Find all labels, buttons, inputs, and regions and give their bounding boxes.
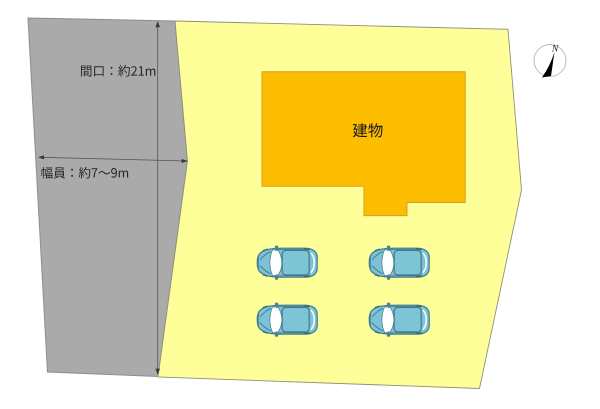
svg-text:N: N bbox=[551, 45, 559, 55]
